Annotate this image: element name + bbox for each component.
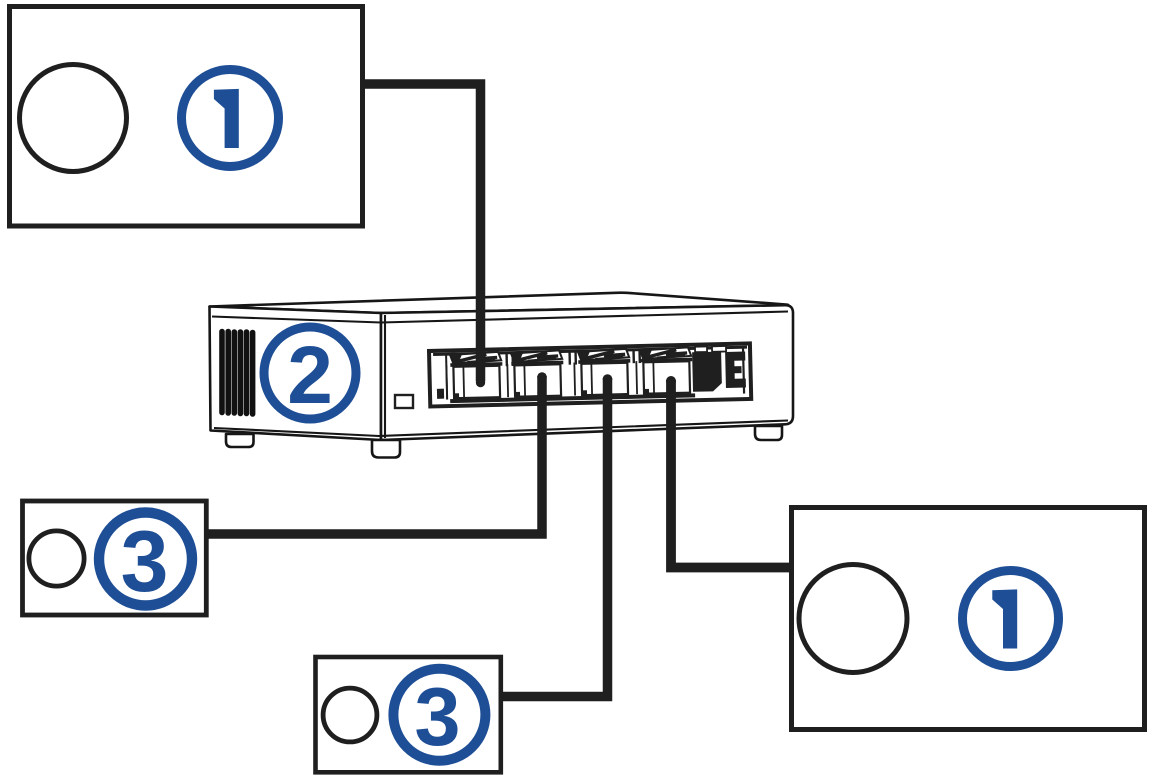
svg-text:3: 3 [121, 514, 169, 610]
svg-text:3: 3 [414, 670, 460, 763]
svg-text:2: 2 [287, 330, 333, 421]
